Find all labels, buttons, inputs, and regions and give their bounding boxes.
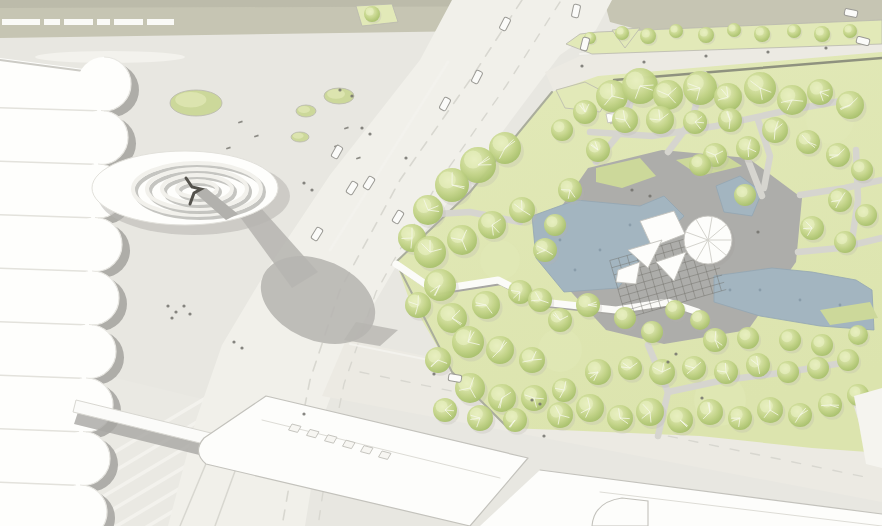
site-plan-rendering bbox=[0, 0, 882, 526]
plan-svg bbox=[0, 0, 882, 526]
